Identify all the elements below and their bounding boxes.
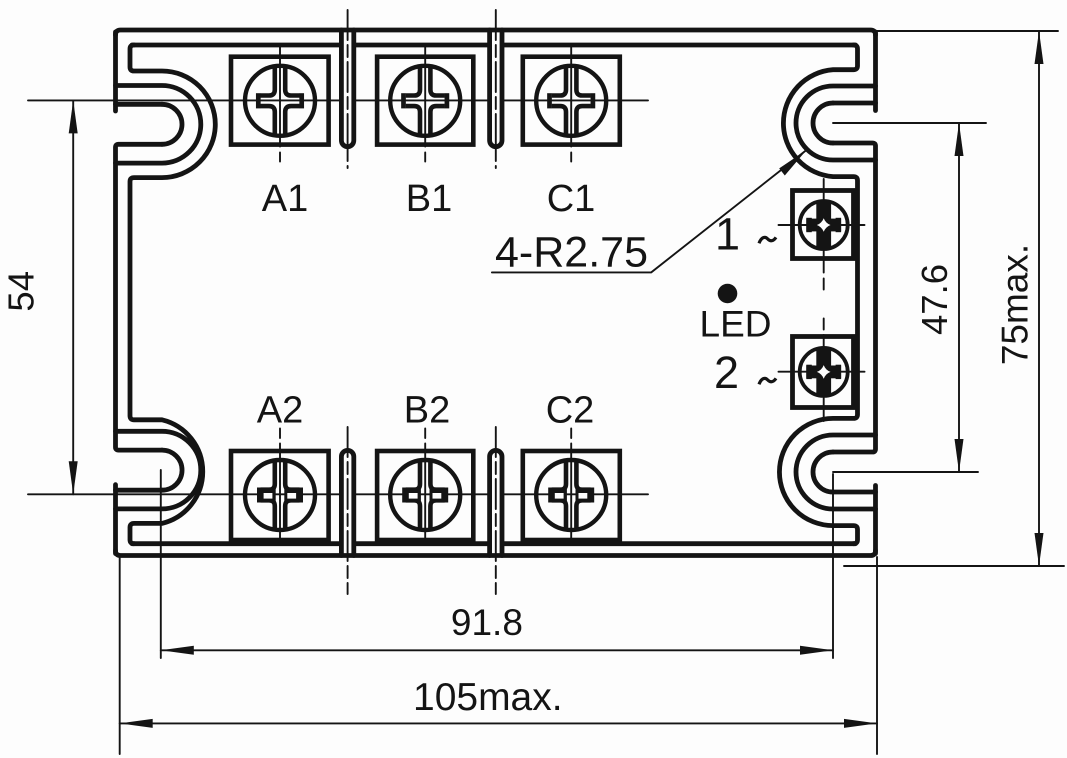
svg-text:B2: B2: [404, 389, 450, 431]
svg-text:4-R2.75: 4-R2.75: [495, 229, 648, 277]
svg-text:A1: A1: [262, 178, 308, 220]
svg-text:91.8: 91.8: [451, 602, 523, 643]
svg-text:105max.: 105max.: [413, 676, 563, 719]
svg-text:75max.: 75max.: [995, 244, 1036, 365]
svg-text:B1: B1: [406, 178, 452, 220]
svg-text:C2: C2: [546, 389, 595, 431]
svg-text:C1: C1: [547, 178, 596, 220]
svg-text:54: 54: [1, 271, 42, 312]
svg-text:LED: LED: [700, 304, 772, 345]
svg-text:1: 1: [715, 208, 740, 259]
svg-text:A2: A2: [257, 389, 303, 431]
svg-text:47.6: 47.6: [914, 264, 955, 335]
svg-text:2: 2: [714, 347, 739, 398]
